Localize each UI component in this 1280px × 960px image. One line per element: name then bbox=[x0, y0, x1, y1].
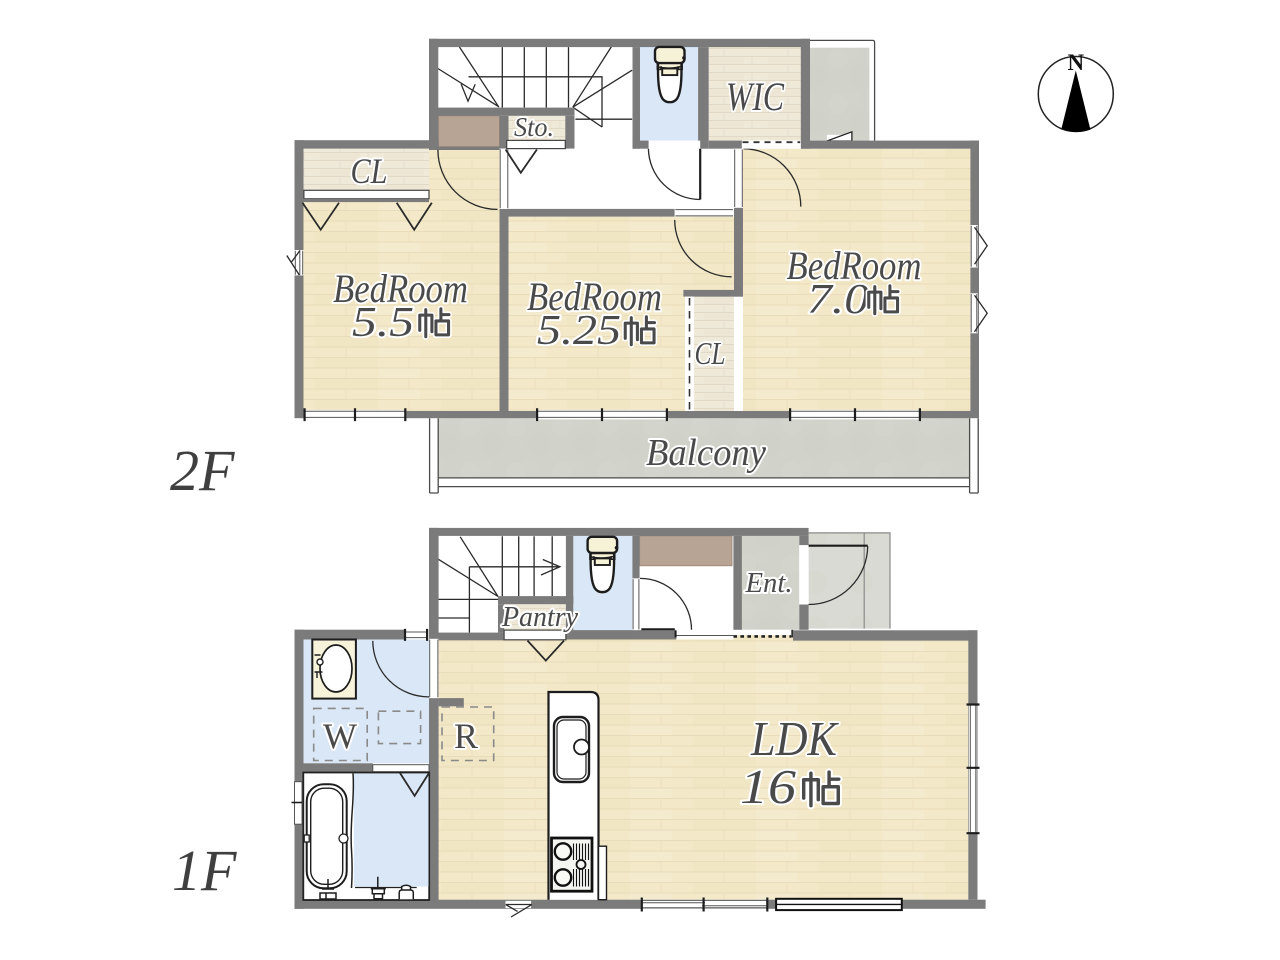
svg-text:2F: 2F bbox=[170, 438, 235, 503]
svg-text:Balcony: Balcony bbox=[646, 432, 766, 474]
svg-text:R: R bbox=[454, 716, 478, 756]
svg-text:CL: CL bbox=[351, 151, 388, 191]
svg-text:1F: 1F bbox=[172, 838, 237, 903]
svg-text:Sto.: Sto. bbox=[514, 112, 554, 142]
svg-text:7.0: 7.0 bbox=[807, 277, 869, 323]
svg-text:W: W bbox=[323, 716, 357, 756]
svg-text:LDK: LDK bbox=[750, 711, 839, 766]
svg-text:5.25: 5.25 bbox=[537, 308, 621, 354]
svg-text:N: N bbox=[1067, 50, 1084, 75]
svg-text:WIC: WIC bbox=[726, 74, 785, 119]
svg-text:Ent.: Ent. bbox=[744, 568, 792, 599]
svg-text:5.5: 5.5 bbox=[352, 300, 414, 346]
svg-text:Pantry: Pantry bbox=[501, 602, 579, 633]
svg-text:CL: CL bbox=[695, 335, 726, 371]
svg-text:16: 16 bbox=[740, 759, 797, 814]
